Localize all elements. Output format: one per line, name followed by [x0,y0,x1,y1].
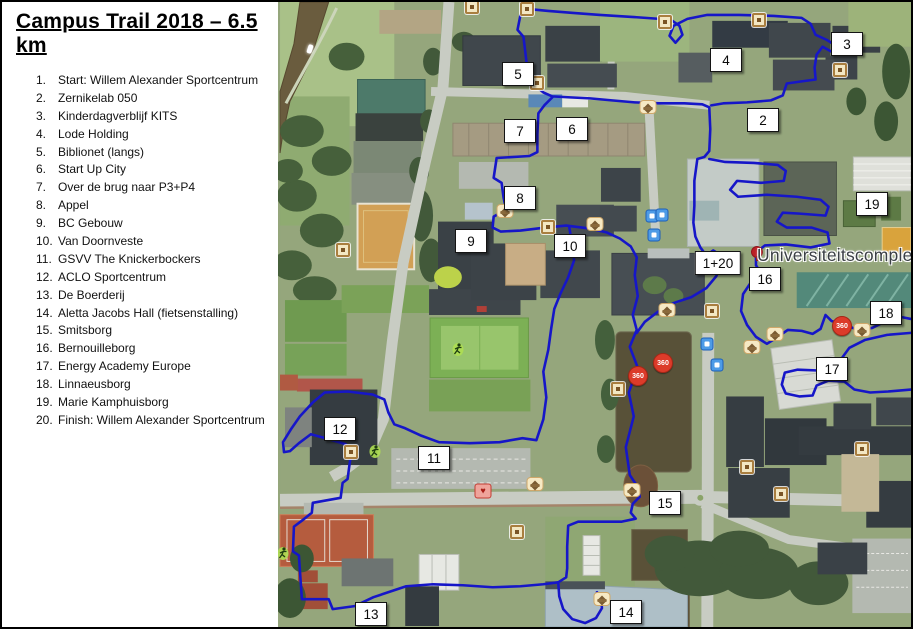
legend-item-label: Start: Willem Alexander Sportcentrum [58,73,258,87]
legend-item-label: Marie Kamphuisborg [58,395,169,409]
poi-icon [336,243,350,257]
satellite-map: Universiteitscomplex 360360360♥ 57689104… [278,2,913,627]
legend-item-18: 18.Linnaeusborg [36,375,278,393]
legend-item-number: 1. [36,73,58,87]
legend-item-label: GSVV The Knickerbockers [58,252,201,266]
waypoint-marker-1+20: 1+20 [695,251,741,275]
legend-panel: Campus Trail 2018 – 6.5 km 1.Start: Will… [2,2,278,627]
waypoint-marker-4: 4 [710,48,742,72]
legend-item-number: 13. [36,288,58,302]
poi-icon [541,220,555,234]
satellite-terrain [278,2,913,627]
waypoint-marker-17: 17 [816,357,848,381]
legend-item-19: 19.Marie Kamphuisborg [36,393,278,411]
waypoint-marker-8: 8 [504,186,536,210]
legend-item-label: Zernikelab 050 [58,91,137,105]
legend-item-15: 15.Smitsborg [36,321,278,339]
legend-item-5: 5.Biblionet (langs) [36,143,278,161]
waypoint-marker-6: 6 [556,117,588,141]
waypoint-marker-19: 19 [856,192,888,216]
legend-item-3: 3.Kinderdagverblijf KITS [36,107,278,125]
legend-item-number: 10. [36,234,58,248]
legend-item-label: BC Gebouw [58,216,123,230]
legend-item-16: 16.Bernouilleborg [36,339,278,357]
legend-item-label: Appel [58,198,89,212]
legend-item-label: Bernouilleborg [58,341,135,355]
medical-icon: ♥ [475,484,492,499]
legend-item-number: 11. [36,252,58,266]
legend-item-label: Lode Holding [58,127,129,141]
waypoint-marker-10: 10 [554,234,586,258]
legend-item-label: De Boerderij [58,288,125,302]
legend-item-20: 20.Finish: Willem Alexander Sportcentrum [36,411,278,429]
player-icon [452,342,465,362]
legend-item-17: 17.Energy Academy Europe [36,357,278,375]
legend-item-label: Kinderdagverblijf KITS [58,109,177,123]
legend-item-9: 9.BC Gebouw [36,214,278,232]
legend-item-number: 14. [36,306,58,320]
legend-item-label: Aletta Jacobs Hall (fietsenstalling) [58,306,238,320]
poi-icon [465,2,479,14]
waypoint-marker-11: 11 [418,446,450,470]
waypoint-marker-7: 7 [504,119,536,143]
legend-item-number: 15. [36,323,58,337]
legend-item-12: 12.ACLO Sportcentrum [36,268,278,286]
legend-item-number: 3. [36,109,58,123]
poi-icon [344,445,358,459]
legend-item-11: 11.GSVV The Knickerbockers [36,250,278,268]
poi-icon [705,304,719,318]
legend-item-13: 13.De Boerderij [36,286,278,304]
poi-icon [510,525,524,539]
legend-item-number: 4. [36,127,58,141]
education-icon [767,327,784,341]
legend-item-label: Linnaeusborg [58,377,131,391]
legend-item-6: 6.Start Up City [36,160,278,178]
legend-item-8: 8.Appel [36,196,278,214]
transit-icon [701,338,714,351]
transit-icon [656,209,669,222]
poi-icon [611,382,625,396]
legend-item-number: 19. [36,395,58,409]
transit-icon [711,359,724,372]
legend-item-label: Smitsborg [58,323,112,337]
legend-item-label: Van Doornveste [58,234,143,248]
legend-item-number: 7. [36,180,58,194]
campus-trail-map-page: Campus Trail 2018 – 6.5 km 1.Start: Will… [0,0,913,629]
waypoint-marker-13: 13 [355,602,387,626]
legend-item-label: Energy Academy Europe [58,359,191,373]
education-icon [594,592,611,606]
education-icon [527,477,544,491]
education-icon [640,100,657,114]
poi-icon [520,2,534,16]
waypoint-marker-16: 16 [749,267,781,291]
badge-360-icon: 360 [628,366,648,386]
legend-item-2: 2.Zernikelab 050 [36,89,278,107]
legend-item-number: 16. [36,341,58,355]
transit-icon [648,229,661,242]
legend-item-number: 9. [36,216,58,230]
waypoint-marker-9: 9 [455,229,487,253]
legend-item-14: 14.Aletta Jacobs Hall (fietsenstalling) [36,304,278,322]
legend-item-number: 17. [36,359,58,373]
legend-item-7: 7.Over de brug naar P3+P4 [36,178,278,196]
poi-icon [833,63,847,77]
waypoint-marker-14: 14 [610,600,642,624]
waypoint-marker-2: 2 [747,108,779,132]
legend-list: 1.Start: Willem Alexander Sportcentrum2.… [36,71,278,429]
legend-item-number: 12. [36,270,58,284]
legend-item-1: 1.Start: Willem Alexander Sportcentrum [36,71,278,89]
poi-icon [855,442,869,456]
education-icon [659,303,676,317]
waypoint-marker-18: 18 [870,301,902,325]
legend-item-label: Start Up City [58,162,126,176]
legend-item-number: 2. [36,91,58,105]
legend-item-label: Biblionet (langs) [58,145,144,159]
education-icon [587,217,604,231]
legend-item-10: 10.Van Doornveste [36,232,278,250]
poi-icon [658,15,672,29]
badge-360-icon: 360 [653,353,673,373]
waypoint-marker-3: 3 [831,32,863,56]
legend-item-number: 20. [36,413,58,427]
poi-icon [740,460,754,474]
badge-360-icon: 360 [832,316,852,336]
poi-icon [774,487,788,501]
legend-item-label: Over de brug naar P3+P4 [58,180,195,194]
page-title: Campus Trail 2018 – 6.5 km [16,10,278,58]
legend-item-label: Finish: Willem Alexander Sportcentrum [58,413,265,427]
education-icon [854,323,871,337]
education-icon [744,340,761,354]
waypoint-marker-12: 12 [324,417,356,441]
waypoint-marker-15: 15 [649,491,681,515]
legend-item-4: 4.Lode Holding [36,125,278,143]
poi-icon [752,13,766,27]
education-icon [624,483,641,497]
player-icon [278,546,290,566]
waypoint-marker-5: 5 [502,62,534,86]
legend-item-number: 8. [36,198,58,212]
legend-item-number: 18. [36,377,58,391]
legend-item-number: 6. [36,162,58,176]
legend-item-label: ACLO Sportcentrum [58,270,166,284]
place-label: Universiteitscomplex [757,245,913,266]
legend-item-number: 5. [36,145,58,159]
player-icon [369,444,382,464]
